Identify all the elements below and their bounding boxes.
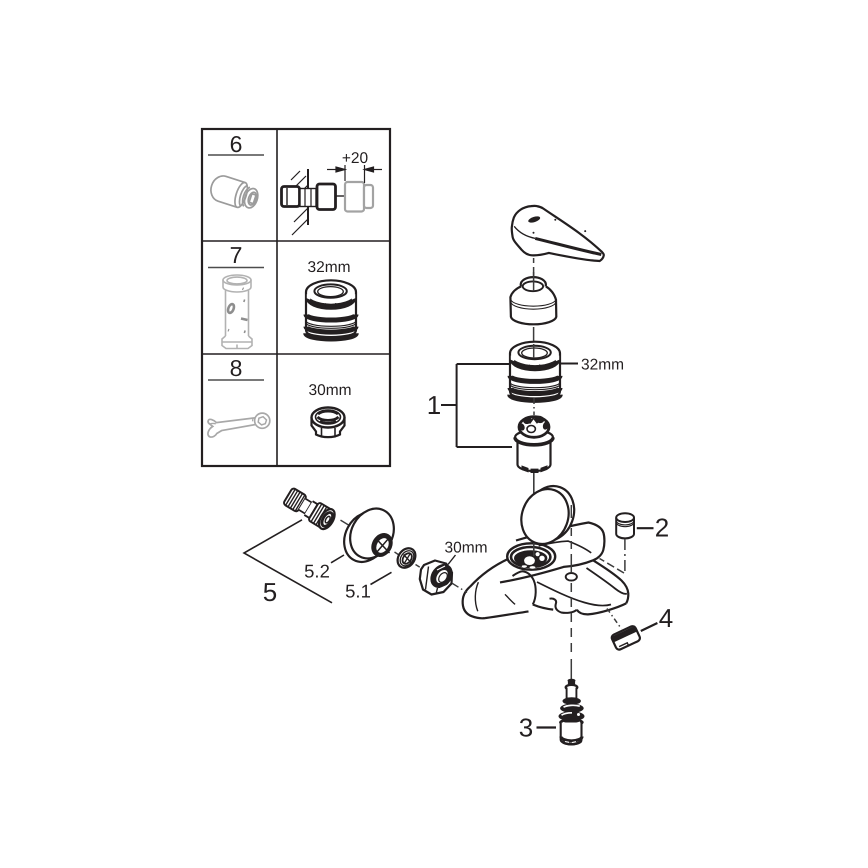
svg-text:32mm: 32mm — [307, 259, 350, 276]
svg-text:8: 8 — [230, 355, 243, 381]
svg-text:4: 4 — [659, 603, 673, 633]
svg-text:32mm: 32mm — [581, 357, 624, 374]
svg-text:30mm: 30mm — [308, 382, 351, 399]
svg-text:3: 3 — [519, 713, 533, 743]
svg-text:+20: +20 — [342, 150, 369, 167]
svg-text:2: 2 — [655, 513, 669, 543]
svg-text:5.2: 5.2 — [304, 561, 330, 582]
svg-text:5: 5 — [263, 577, 277, 607]
svg-text:5.1: 5.1 — [345, 581, 371, 602]
svg-text:6: 6 — [230, 131, 243, 157]
svg-text:30mm: 30mm — [444, 540, 487, 557]
svg-text:1: 1 — [427, 390, 441, 420]
svg-text:7: 7 — [230, 242, 243, 268]
